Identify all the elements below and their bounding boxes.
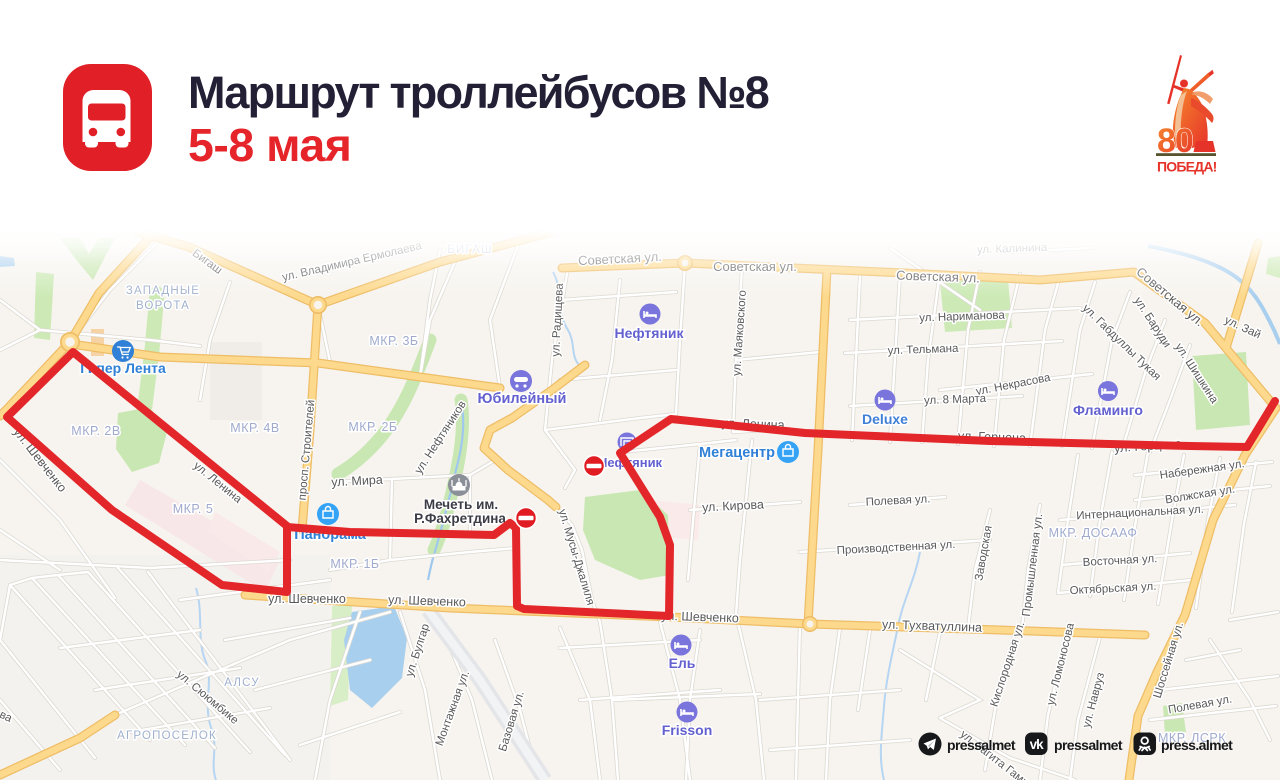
svg-text:АГРОПОСЕЛОК: АГРОПОСЕЛОК [117,730,217,742]
svg-text:press.almet: press.almet [1161,737,1233,753]
svg-text:Р.Фахретдина: Р.Фахретдина [414,511,506,526]
svg-text:МКР. 1Б: МКР. 1Б [330,557,379,571]
svg-text:МКР. 5: МКР. 5 [173,502,214,516]
svg-text:vk: vk [1030,737,1045,752]
svg-text:ул. 8 Марта: ул. 8 Марта [924,393,987,407]
svg-text:Deluxe: Deluxe [862,411,908,427]
svg-text:Мечеть им.: Мечеть им. [424,497,498,512]
svg-text:5-8 мая: 5-8 мая [188,119,351,171]
svg-text:МКР. 3Б: МКР. 3Б [369,334,418,348]
svg-text:ПОБЕДА!: ПОБЕДА! [1157,159,1217,175]
svg-text:Ель: Ель [669,655,696,671]
svg-text:Юбилейный: Юбилейный [478,391,567,407]
svg-text:Фламинго: Фламинго [1073,402,1143,418]
svg-text:МКР. ДОСААФ: МКР. ДОСААФ [1049,526,1138,540]
svg-text:МКР. 2В: МКР. 2В [71,424,120,438]
svg-text:МКР. 4В: МКР. 4В [230,421,279,435]
svg-text:ул. Тельмана: ул. Тельмана [887,343,959,357]
svg-text:pressalmet: pressalmet [947,737,1016,753]
svg-text:Frisson: Frisson [662,722,713,738]
svg-text:Нефтяник: Нефтяник [614,325,684,341]
svg-text:ул. Мира: ул. Мира [331,473,383,490]
svg-text:Маршрут троллейбусов №8: Маршрут троллейбусов №8 [188,67,769,118]
svg-text:pressalmet: pressalmet [1054,737,1123,753]
svg-text:ВОРОТА: ВОРОТА [136,300,190,312]
svg-text:Мегацентр: Мегацентр [699,445,775,461]
svg-text:АЛСУ: АЛСУ [224,677,260,689]
svg-text:МКР. 2Б: МКР. 2Б [348,420,397,434]
svg-text:ул. Шевченко: ул. Шевченко [388,593,466,610]
